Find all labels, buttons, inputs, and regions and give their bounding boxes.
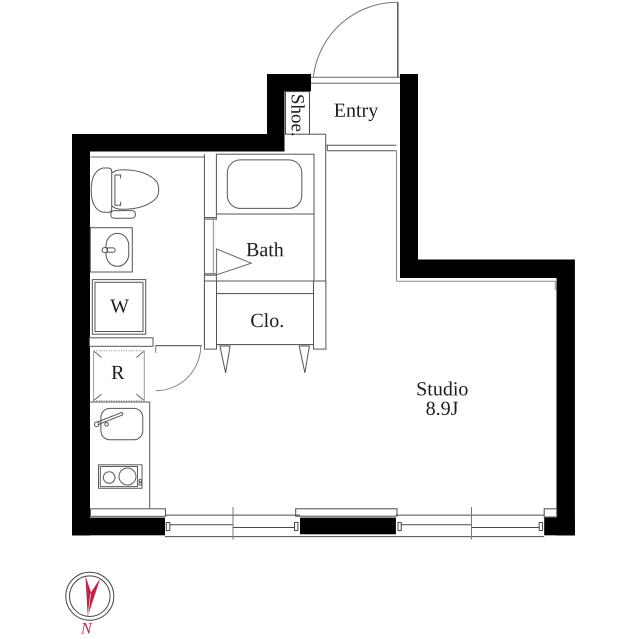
svg-text:W: W bbox=[110, 296, 129, 318]
svg-text:8.9J: 8.9J bbox=[426, 398, 459, 420]
svg-text:R: R bbox=[111, 362, 125, 384]
svg-text:N: N bbox=[80, 620, 93, 637]
svg-text:Entry: Entry bbox=[334, 100, 378, 122]
svg-text:Clo.: Clo. bbox=[250, 310, 284, 332]
svg-text:Shoe.: Shoe. bbox=[287, 94, 308, 137]
svg-text:Bath: Bath bbox=[246, 239, 284, 261]
